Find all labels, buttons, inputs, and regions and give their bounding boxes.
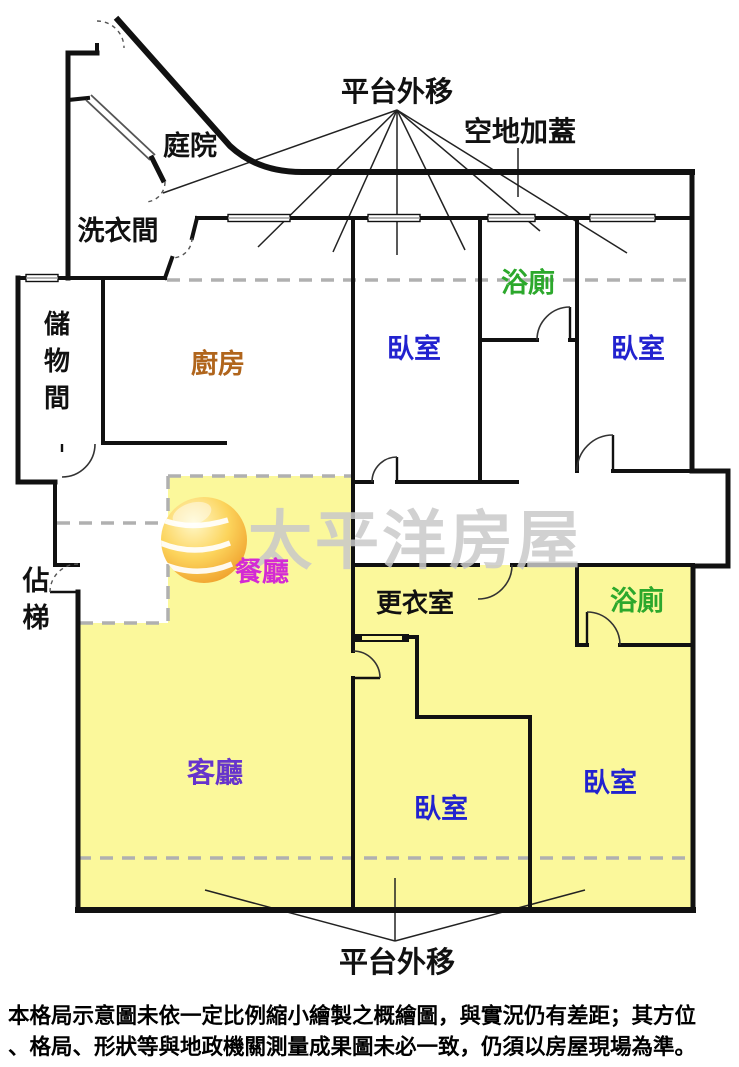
disclaimer: 本格局示意圖未依一定比例縮小繪製之概繪圖，與實況仍有差距；其方位 、格局、形狀等… (8, 1003, 696, 1059)
svg-text:佔: 佔 (22, 566, 50, 596)
svg-text:、格局、形狀等與地政機關測量成果圖未必一致，仍須以房屋現場為: 、格局、形狀等與地政機關測量成果圖未必一致，仍須以房屋現場為準。 (8, 1034, 696, 1059)
window-storage (26, 275, 58, 282)
bedroom-2-door (577, 435, 613, 471)
dressing-label: 更衣室 (376, 588, 454, 618)
window-bedroom-2 (590, 215, 655, 222)
svg-text:梯: 梯 (23, 603, 50, 633)
courtyard-label: 庭院 (163, 130, 217, 161)
svg-text:本格局示意圖未依一定比例縮小繪製之概繪圖，與實況仍有差距；其: 本格局示意圖未依一定比例縮小繪製之概繪圖，與實況仍有差距；其方位 (8, 1003, 696, 1028)
window-bath-top (488, 215, 535, 222)
bedroom-bottom-right-label: 臥室 (583, 767, 637, 798)
vacant-cover-label: 空地加蓋 (464, 115, 576, 147)
entry-stair-door (50, 564, 78, 592)
bedroom-bottom-middle-label: 臥室 (414, 793, 468, 824)
courtyard-window (86, 95, 155, 160)
storage-label: 儲 物 間 (44, 309, 70, 413)
dining-label: 餐廳 (235, 556, 289, 587)
storage-door (62, 444, 95, 477)
bath-bottom-label: 浴廁 (610, 585, 664, 616)
window-bedroom-1 (368, 215, 420, 222)
platform-top-label: 平台外移 (341, 75, 453, 107)
window-kitchen (228, 215, 290, 222)
bedroom-top-right-label: 臥室 (611, 333, 665, 364)
bath-top-door (537, 307, 570, 340)
svg-text:間: 間 (44, 383, 70, 413)
living-label: 客廳 (187, 756, 243, 788)
watermark: 太平洋房屋 (156, 497, 583, 588)
floor-plan-page: 太平洋房屋 平台外移 空地加蓋 平台外移 庭院 洗衣間 儲 物 間 廚房 臥室 … (0, 0, 739, 1067)
kitchen-label: 廚房 (191, 348, 245, 379)
bedroom-top-left-label: 臥室 (387, 333, 441, 364)
bedroom-1-door (372, 457, 397, 482)
platform-bottom-label: 平台外移 (339, 945, 455, 979)
laundry-label: 洗衣間 (78, 215, 159, 246)
floor-plan-svg: 太平洋房屋 平台外移 空地加蓋 平台外移 庭院 洗衣間 儲 物 間 廚房 臥室 … (0, 0, 739, 1067)
laundry-door-lower (172, 238, 192, 258)
svg-text:儲: 儲 (44, 309, 70, 339)
svg-text:物: 物 (44, 346, 70, 376)
stair-label: 佔 梯 (22, 566, 50, 633)
laundry-door-upper (145, 182, 165, 202)
bath-top-label: 浴廁 (501, 267, 555, 298)
watermark-text: 太平洋房屋 (248, 506, 583, 577)
